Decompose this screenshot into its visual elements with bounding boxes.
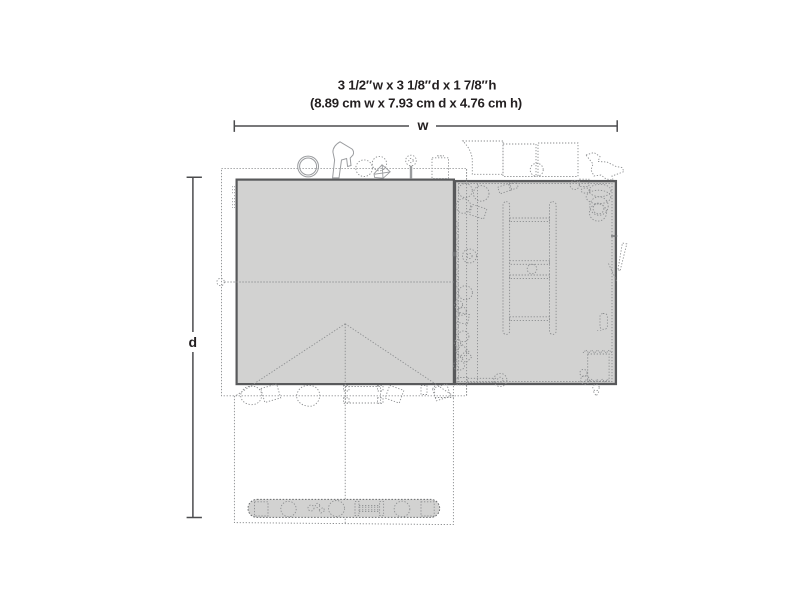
- svg-text:d: d: [189, 334, 198, 350]
- svg-text:(8.89 cm w x 7.93 cm d x 4.76: (8.89 cm w x 7.93 cm d x 4.76 cm h): [310, 96, 522, 111]
- svg-text:3 1/2″ w x 3 1/8″ d x 1 7/8″ h: 3 1/2″ w x 3 1/8″ d x 1 7/8″ h: [338, 78, 497, 93]
- svg-text:w: w: [417, 117, 429, 133]
